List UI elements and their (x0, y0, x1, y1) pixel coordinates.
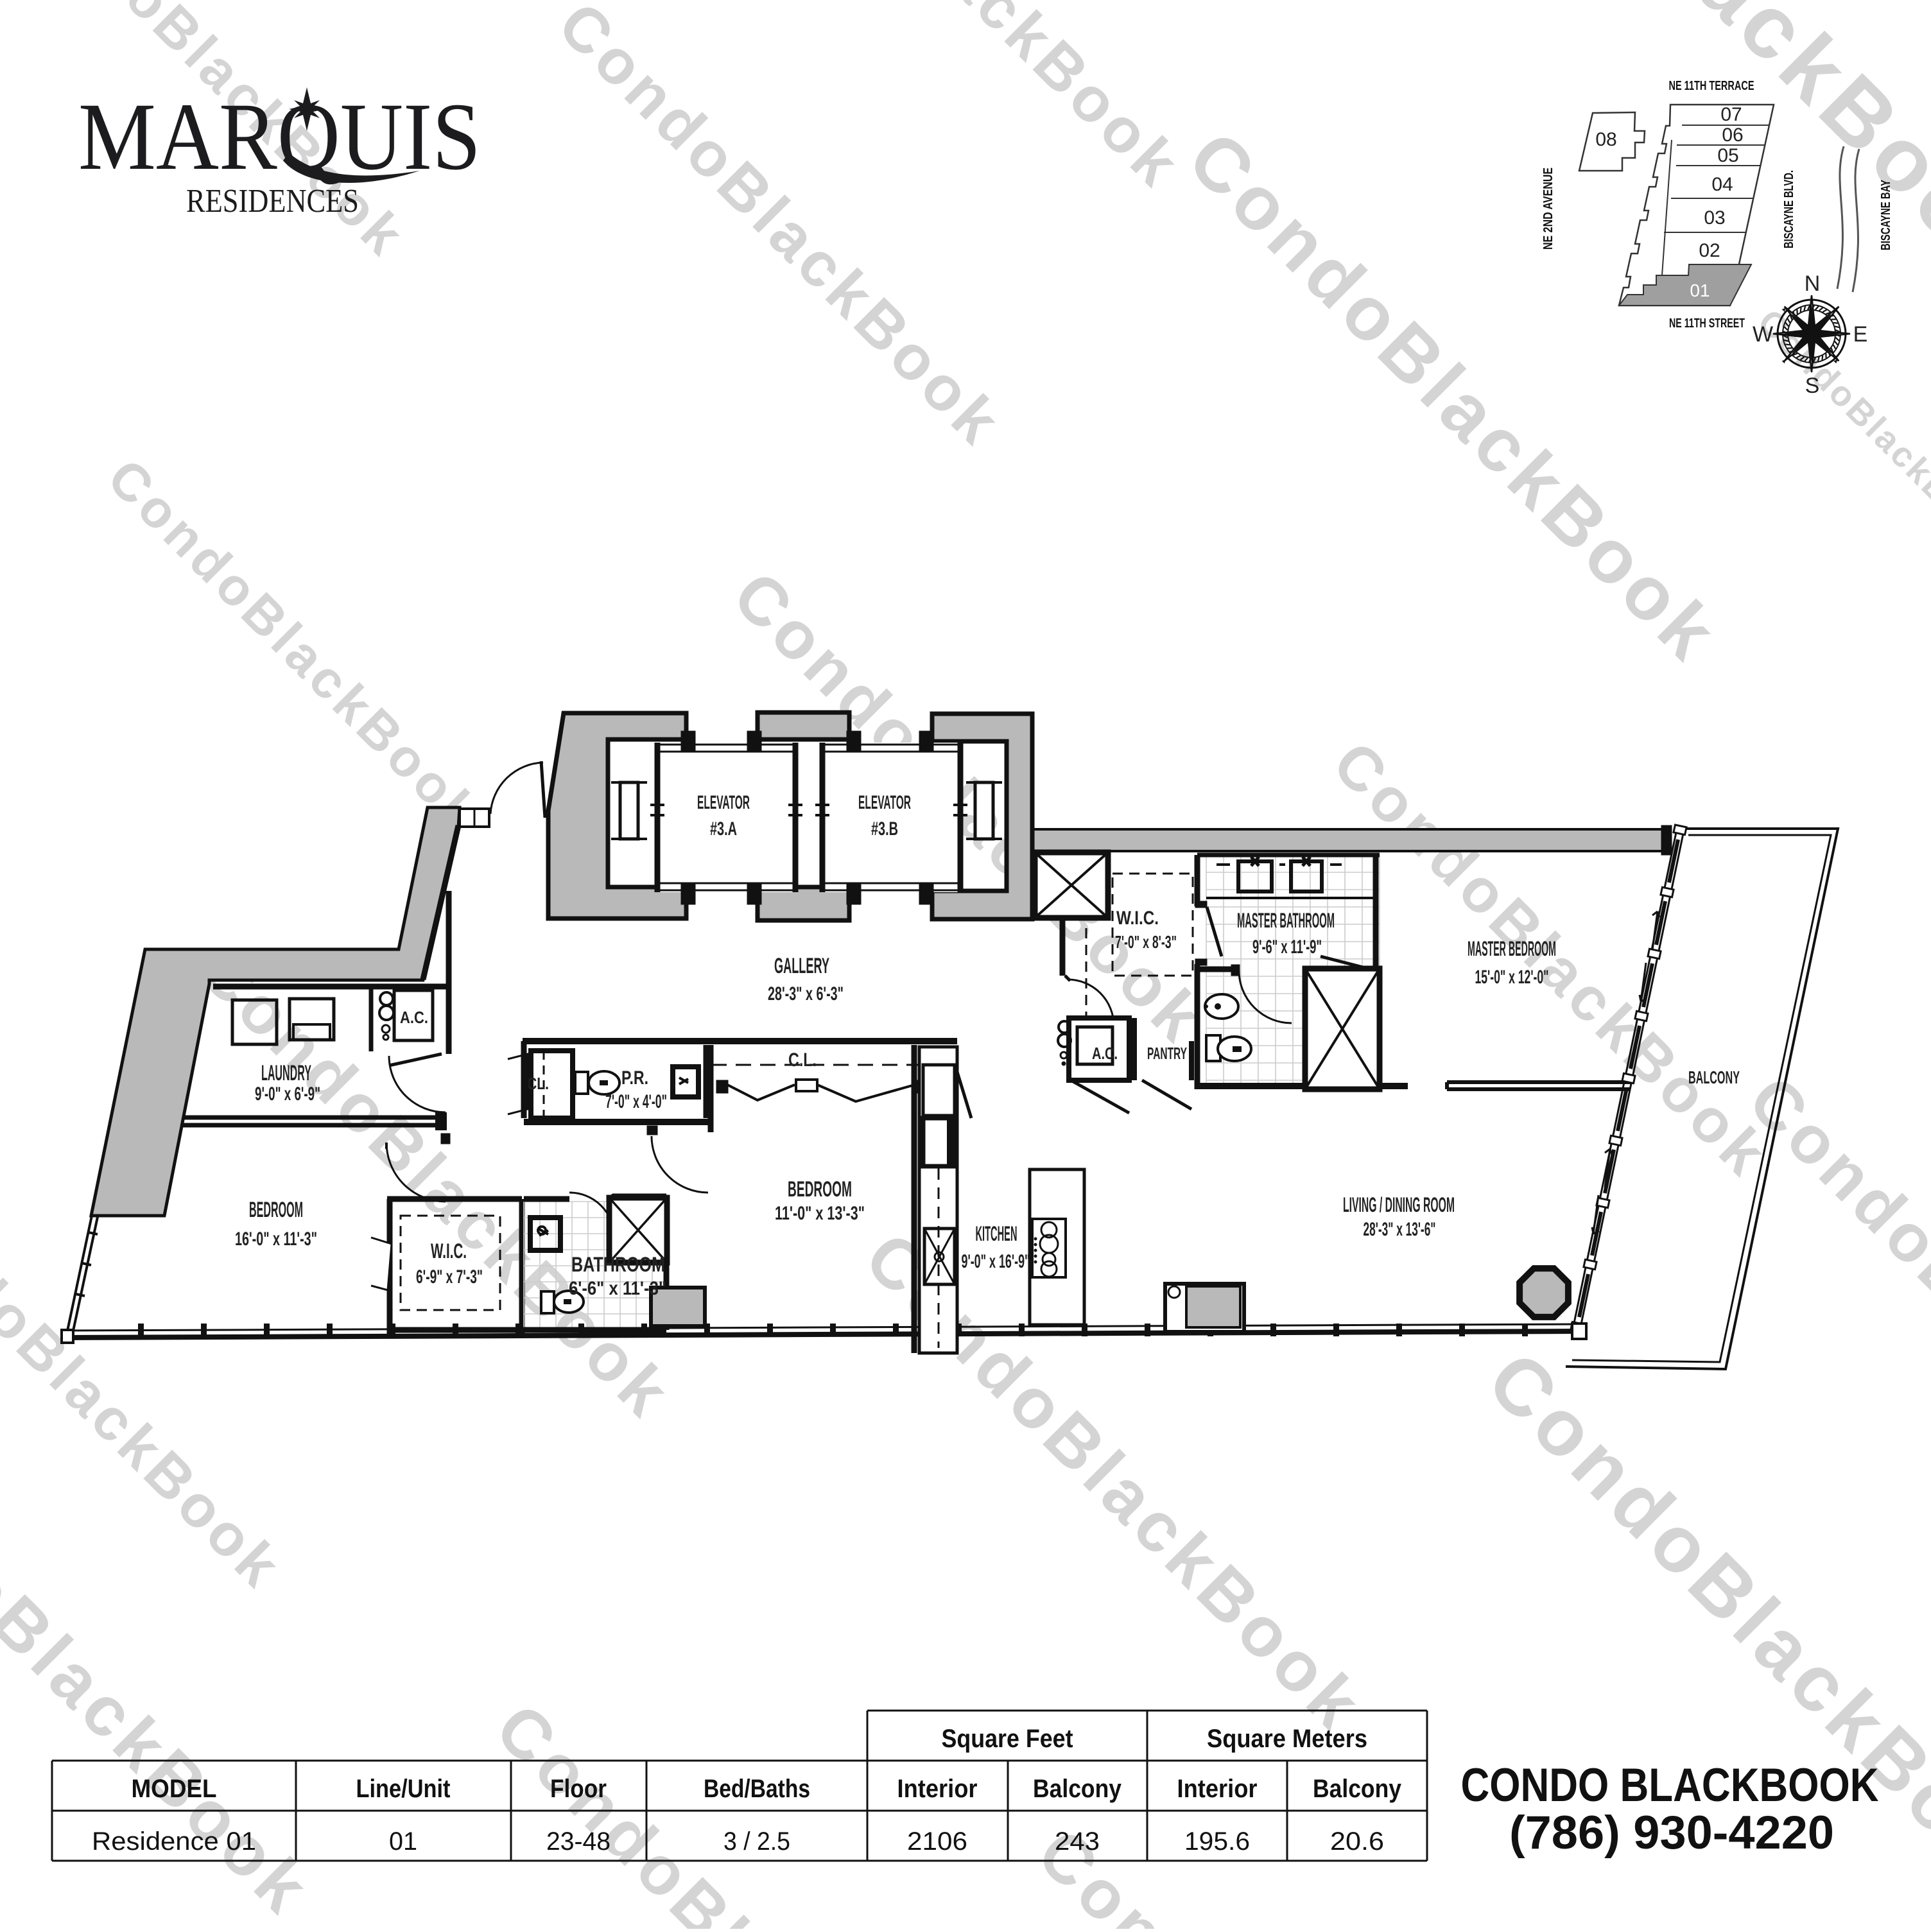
svg-text:S: S (1805, 374, 1820, 398)
svg-text:Balcony: Balcony (1033, 1775, 1122, 1803)
svg-text:6'-9" x 7'-3": 6'-9" x 7'-3" (416, 1266, 483, 1288)
svg-text:CL.: CL. (527, 1074, 549, 1093)
svg-text:LAUNDRY: LAUNDRY (261, 1061, 311, 1085)
svg-text:CONDO BLACKBOOK: CONDO BLACKBOOK (1461, 1759, 1879, 1811)
svg-text:01: 01 (389, 1827, 417, 1856)
svg-text:Interior: Interior (1177, 1775, 1258, 1803)
svg-text:28'-3" x 13'-6": 28'-3" x 13'-6" (1364, 1219, 1436, 1240)
svg-text:RESIDENCES: RESIDENCES (186, 183, 359, 220)
svg-text:6'-6" x 11'-3": 6'-6" x 11'-3" (569, 1278, 666, 1299)
svg-text:#3.B: #3.B (871, 818, 898, 840)
svg-text:9'-0" x 6'-9": 9'-0" x 6'-9" (255, 1083, 320, 1105)
svg-text:ELEVATOR: ELEVATOR (697, 792, 750, 813)
svg-text:Residence 01: Residence 01 (92, 1827, 256, 1856)
svg-text:Floor: Floor (550, 1775, 607, 1803)
svg-text:Balcony: Balcony (1313, 1775, 1402, 1803)
svg-text:BEDROOM: BEDROOM (788, 1177, 852, 1202)
svg-text:243: 243 (1055, 1827, 1100, 1856)
svg-text:ELEVATOR: ELEVATOR (858, 792, 911, 813)
svg-text:MASTER BEDROOM: MASTER BEDROOM (1468, 937, 1556, 960)
svg-text:07: 07 (1720, 104, 1742, 125)
svg-text:#3.A: #3.A (710, 818, 737, 840)
svg-text:MARQUIS: MARQUIS (78, 83, 481, 190)
svg-text:03: 03 (1704, 207, 1725, 229)
svg-text:NE 11TH STREET: NE 11TH STREET (1669, 316, 1745, 331)
svg-text:P.R.: P.R. (621, 1067, 648, 1089)
svg-text:GALLERY: GALLERY (774, 954, 829, 978)
svg-text:Bed/Baths: Bed/Baths (704, 1775, 810, 1803)
svg-text:NE 11TH TERRACE: NE 11TH TERRACE (1669, 79, 1754, 93)
svg-text:MASTER BATHROOM: MASTER BATHROOM (1237, 909, 1335, 932)
svg-text:C.L.: C.L. (788, 1049, 817, 1071)
svg-text:N: N (1805, 272, 1821, 296)
svg-text:Line/Unit: Line/Unit (356, 1775, 451, 1803)
svg-text:BEDROOM: BEDROOM (249, 1198, 303, 1222)
svg-text:3 / 2.5: 3 / 2.5 (723, 1827, 790, 1856)
svg-text:28'-3" x 6'-3": 28'-3" x 6'-3" (768, 983, 844, 1005)
svg-text:02: 02 (1699, 240, 1720, 261)
svg-text:06: 06 (1722, 125, 1743, 146)
svg-text:A.C.: A.C. (1092, 1044, 1118, 1063)
svg-text:20.6: 20.6 (1330, 1827, 1384, 1856)
svg-text:Square Feet: Square Feet (942, 1725, 1073, 1753)
svg-text:9'-0" x 16'-9": 9'-0" x 16'-9" (962, 1251, 1030, 1272)
svg-text:MODEL: MODEL (132, 1775, 217, 1803)
svg-text:BATHROOM: BATHROOM (571, 1253, 665, 1276)
svg-text:NE 2ND AVENUE: NE 2ND AVENUE (1541, 168, 1555, 250)
svg-text:Square Meters: Square Meters (1207, 1725, 1367, 1753)
svg-text:A.C.: A.C. (400, 1008, 428, 1027)
svg-text:(786) 930-4220: (786) 930-4220 (1509, 1807, 1834, 1859)
svg-text:08: 08 (1595, 129, 1616, 150)
svg-text:W: W (1753, 322, 1773, 347)
svg-text:E: E (1853, 322, 1868, 347)
svg-text:W.I.C.: W.I.C. (1116, 908, 1159, 929)
svg-text:11'-0" x 13'-3": 11'-0" x 13'-3" (775, 1203, 865, 1224)
svg-text:BALCONY: BALCONY (1688, 1067, 1740, 1087)
svg-text:01: 01 (1690, 280, 1710, 300)
svg-text:05: 05 (1717, 145, 1738, 166)
svg-text:W.I.C.: W.I.C. (431, 1239, 467, 1263)
svg-text:7'-0" x 4'-0": 7'-0" x 4'-0" (605, 1091, 667, 1112)
svg-text:LIVING / DINING ROOM: LIVING / DINING ROOM (1343, 1193, 1455, 1216)
svg-text:BISCAYNE BAY: BISCAYNE BAY (1879, 180, 1893, 250)
svg-text:195.6: 195.6 (1184, 1827, 1250, 1856)
svg-text:15'-0" x 12'-0": 15'-0" x 12'-0" (1475, 967, 1549, 988)
svg-text:04: 04 (1711, 174, 1733, 195)
svg-text:7'-0" x 8'-3": 7'-0" x 8'-3" (1115, 932, 1177, 952)
svg-text:16'-0" x 11'-3": 16'-0" x 11'-3" (235, 1229, 317, 1250)
svg-text:KITCHEN: KITCHEN (976, 1222, 1017, 1245)
svg-text:Interior: Interior (897, 1775, 978, 1803)
svg-text:23-48: 23-48 (546, 1827, 610, 1856)
svg-text:2106: 2106 (907, 1827, 967, 1856)
svg-text:9'-6" x 11'-9": 9'-6" x 11'-9" (1252, 936, 1322, 958)
svg-text:BISCAYNE BLVD.: BISCAYNE BLVD. (1782, 170, 1796, 248)
svg-text:PANTRY: PANTRY (1147, 1044, 1187, 1063)
